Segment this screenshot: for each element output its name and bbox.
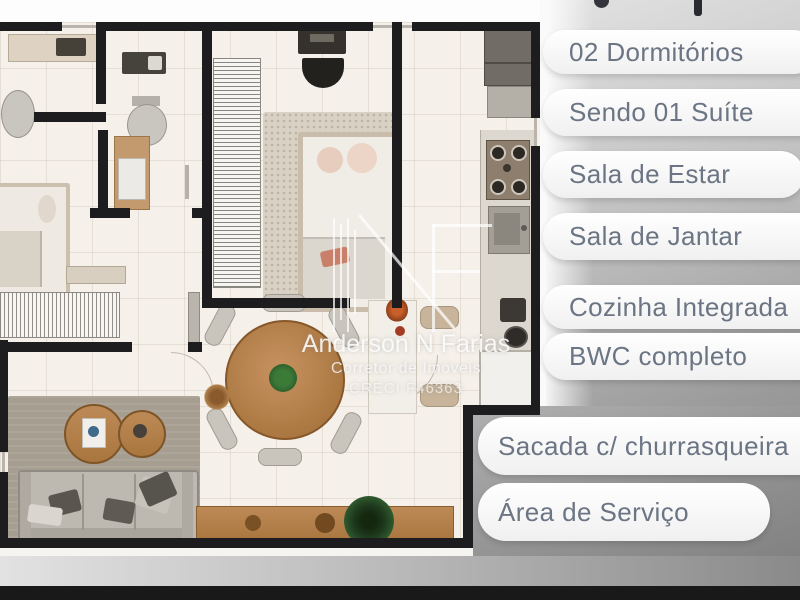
stool	[420, 384, 459, 407]
wall	[34, 112, 106, 122]
feature-label: Sala de Jantar	[569, 221, 742, 252]
wall	[202, 22, 212, 308]
blanket	[0, 231, 42, 287]
pillow	[38, 195, 56, 223]
dining-area	[180, 280, 400, 470]
feature-label: Sacada c/ churrasqueira	[498, 431, 789, 462]
kitchen-cabinet	[487, 86, 533, 118]
feature-pill-sala-jantar: Sala de Jantar	[543, 213, 800, 260]
feature-pill-bwc: BWC completo	[543, 333, 800, 380]
wall	[0, 472, 8, 548]
window	[534, 118, 537, 146]
feature-label: Sala de Estar	[569, 159, 730, 190]
feature-label: Sendo 01 Suíte	[569, 97, 754, 128]
dried-plant-decor	[204, 384, 230, 410]
suite-bed	[0, 183, 70, 301]
sofa-armrest	[182, 472, 193, 540]
bottom-gray-strip	[0, 556, 800, 586]
table-centerpiece-plant	[269, 364, 297, 392]
wall	[531, 146, 540, 406]
bottom-black-bar	[0, 586, 800, 600]
wall	[96, 22, 106, 104]
feature-label: Cozinha Integrada	[569, 292, 788, 323]
feature-pill-suite: Sendo 01 Suíte	[543, 89, 800, 136]
listing-image: Anderson N Farias Corretor de Imóveis CR…	[0, 0, 800, 600]
wall	[188, 342, 202, 352]
balcony-bench	[196, 506, 454, 542]
plan-margin-top	[0, 0, 545, 22]
dining-chair	[202, 301, 239, 348]
wall	[202, 298, 350, 308]
wall	[392, 22, 402, 308]
feature-pill-dormitorios: 02 Dormitórios	[543, 30, 800, 74]
wall	[463, 405, 473, 548]
feature-pill-sacada: Sacada c/ churrasqueira	[478, 417, 800, 475]
dining-chair	[328, 409, 365, 456]
dining-chair	[258, 448, 302, 466]
wall	[531, 22, 540, 118]
plan-outer-band	[0, 548, 473, 556]
wall	[0, 22, 62, 31]
bedroom-2	[202, 22, 402, 308]
fridge	[484, 30, 533, 86]
window	[2, 452, 5, 472]
wall	[0, 342, 132, 352]
wall	[412, 22, 540, 31]
lower-cabinet	[479, 350, 533, 408]
stool	[420, 306, 459, 329]
feature-label: BWC completo	[569, 341, 747, 372]
sofa	[18, 470, 199, 546]
pillow	[317, 147, 343, 173]
window	[62, 25, 100, 28]
stove	[486, 140, 530, 200]
sliding-door	[188, 292, 200, 344]
bedside-shelf	[66, 266, 126, 284]
suite-wardrobe	[0, 292, 120, 338]
bath-sink	[148, 56, 162, 70]
kitchen-sink	[488, 206, 530, 254]
floor-plan	[0, 0, 560, 600]
living-room	[0, 390, 210, 548]
throw-pillow	[27, 504, 63, 527]
wall	[100, 22, 373, 31]
kitchen	[402, 22, 531, 406]
balcony-rail-wall	[0, 538, 473, 548]
feature-label: Área de Serviço	[498, 497, 689, 528]
desk-chair	[302, 58, 344, 88]
feature-pill-sala-estar: Sala de Estar	[543, 151, 800, 198]
seat-divider	[82, 474, 84, 530]
fridge-divider	[484, 62, 531, 64]
wardrobe	[213, 58, 261, 288]
table-decor	[133, 424, 147, 438]
wall	[463, 405, 540, 415]
cropped-heading-mark	[694, 0, 702, 16]
countertop-appliance	[500, 298, 526, 322]
pot	[504, 326, 528, 348]
bathroom-1	[0, 22, 106, 122]
wall	[90, 208, 130, 218]
vanity-sink	[56, 38, 86, 56]
wall	[98, 130, 108, 218]
feature-pill-area-servico: Área de Serviço	[478, 483, 770, 541]
pillow	[347, 143, 377, 173]
tray-decor	[88, 426, 99, 437]
feature-pill-cozinha: Cozinha Integrada	[543, 285, 800, 329]
feature-label: 02 Dormitórios	[569, 37, 744, 68]
wall	[0, 340, 8, 452]
throw-pillow	[102, 498, 135, 525]
monitor	[310, 34, 334, 42]
